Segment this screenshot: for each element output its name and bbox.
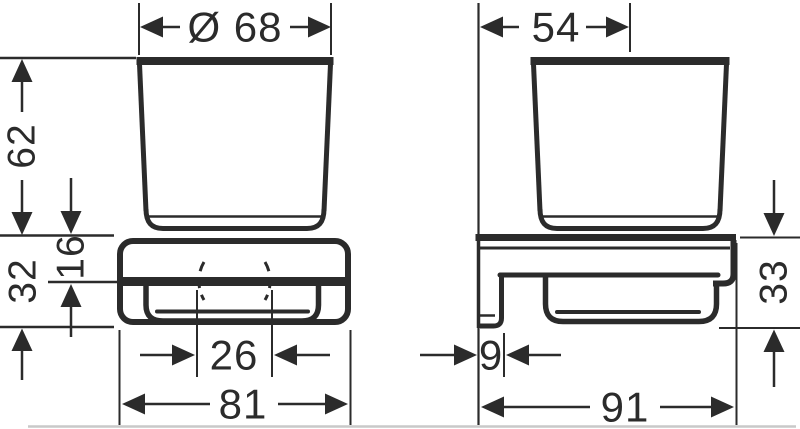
glass-right-side <box>324 64 331 211</box>
dim-label-rim-to-shelf: 16 <box>50 234 93 279</box>
side-view <box>476 3 737 425</box>
side-glass <box>531 61 730 229</box>
arrowhead <box>506 345 529 366</box>
holder-ring-outer <box>146 286 319 321</box>
dim-label-depth: 54 <box>532 4 581 51</box>
side-bracket <box>476 3 737 425</box>
arrowhead <box>606 17 629 38</box>
arrowhead <box>764 213 785 236</box>
front-glass <box>137 61 334 229</box>
dim-label-bracket-side-height: 33 <box>753 259 796 304</box>
arrowhead <box>274 345 297 366</box>
tumbler-holder-dimension-drawing: Ø 68 54 62 32 <box>0 0 800 429</box>
dim-holder-height: 32 <box>2 258 45 380</box>
arrowhead <box>12 59 33 82</box>
arrowhead <box>454 345 477 366</box>
technical-drawing-canvas: Ø 68 54 62 32 <box>0 0 800 429</box>
glass-left-side <box>534 64 541 211</box>
dim-rim-to-shelf: 16 <box>50 178 93 337</box>
arrowhead <box>172 345 195 366</box>
dim-label-overall-width: 81 <box>219 381 268 428</box>
arrowhead <box>308 17 331 38</box>
arrowhead <box>764 330 785 353</box>
dim-label-diameter: Ø 68 <box>187 4 282 51</box>
arrowhead <box>325 394 348 415</box>
dim-label-overall-depth: 91 <box>601 384 650 429</box>
dim-label-glass-height: 62 <box>1 123 44 168</box>
dim-label-hole-spacing: 26 <box>210 332 259 379</box>
dim-bracket-thickness: 9 <box>420 332 561 379</box>
arrowhead <box>140 17 163 38</box>
ring-body <box>546 277 717 322</box>
arrowhead <box>12 212 33 235</box>
glass-left-side <box>140 64 147 211</box>
dim-depth-to-axis: 54 <box>480 3 630 52</box>
dim-glass-height: 62 <box>1 59 44 235</box>
dim-overall-depth: 91 <box>481 243 737 429</box>
glass-bottom <box>540 209 720 229</box>
arrowhead <box>711 397 734 418</box>
arrowhead <box>122 394 145 415</box>
arrowhead <box>61 211 82 234</box>
rear-hook <box>480 273 502 326</box>
arrowhead <box>12 329 33 352</box>
arrowhead <box>61 284 82 307</box>
glass-bottom <box>146 209 324 229</box>
front-holder <box>119 241 348 322</box>
dim-hole-spacing: 26 <box>140 290 330 379</box>
dim-label-bracket-thickness: 9 <box>479 332 503 379</box>
arrowhead <box>480 17 503 38</box>
arrowhead <box>481 397 504 418</box>
dim-label-holder-height: 32 <box>2 258 45 303</box>
dim-glass-diameter: Ø 68 <box>139 3 331 55</box>
glass-right-side <box>720 64 727 211</box>
front-view <box>119 61 348 322</box>
